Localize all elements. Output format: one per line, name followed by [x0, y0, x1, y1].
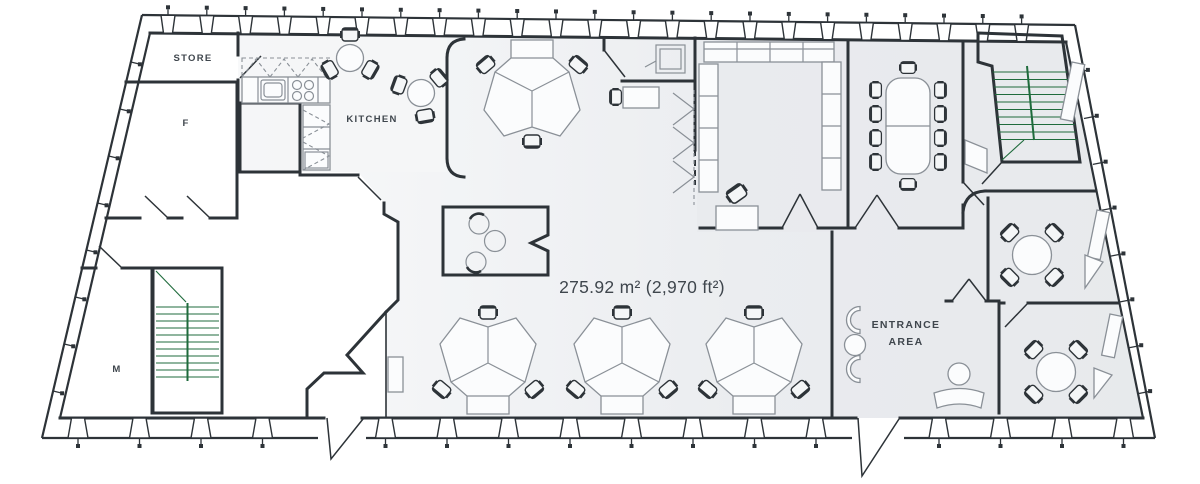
- lounge-table: [716, 206, 758, 230]
- floor-plan-page: STORE F KITCHEN M ENTRANCE AREA 275.92 m…: [0, 0, 1200, 484]
- kitchen-label: KITCHEN: [346, 114, 397, 125]
- store-label: STORE: [173, 53, 212, 64]
- floor-plan-svg: STORE F KITCHEN M ENTRANCE AREA 275.92 m…: [0, 0, 1200, 484]
- left-wall-ticks: [53, 62, 142, 395]
- entrance-plant: [948, 363, 970, 385]
- entrance-label-line1: ENTRANCE: [872, 319, 941, 331]
- entrance-side-table: [845, 335, 866, 356]
- stairs-bottom-left: [153, 268, 222, 413]
- area-label: 275.92 m² (2,970 ft²): [559, 277, 725, 297]
- entrance-label-line2: AREA: [889, 336, 924, 348]
- inner-left-wall: [60, 33, 150, 418]
- toilet-f-label: F: [182, 118, 189, 129]
- outer-left-wall: [42, 15, 142, 438]
- toilet-m-label: M: [112, 364, 121, 375]
- bottom-window-mullions: [68, 418, 1134, 448]
